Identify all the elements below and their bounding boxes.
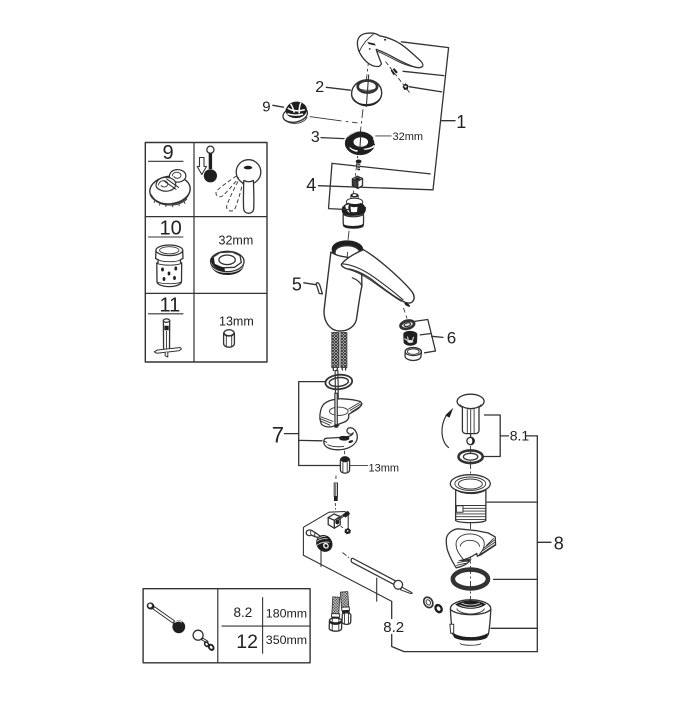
svg-text:9: 9 xyxy=(262,98,270,115)
svg-text:8: 8 xyxy=(554,533,564,553)
svg-text:13mm: 13mm xyxy=(369,463,400,475)
svg-text:8.2: 8.2 xyxy=(234,605,253,620)
svg-text:6: 6 xyxy=(447,329,456,348)
svg-text:5: 5 xyxy=(292,274,302,294)
svg-text:1: 1 xyxy=(456,112,466,132)
svg-text:10: 10 xyxy=(160,218,182,240)
svg-text:13mm: 13mm xyxy=(219,315,254,329)
svg-text:11: 11 xyxy=(160,295,181,317)
svg-text:350mm: 350mm xyxy=(266,633,307,647)
svg-text:3: 3 xyxy=(311,129,320,146)
svg-text:4: 4 xyxy=(306,175,316,195)
svg-text:7: 7 xyxy=(272,422,284,447)
svg-text:32mm: 32mm xyxy=(393,131,424,143)
svg-text:9: 9 xyxy=(163,142,174,164)
svg-text:32mm: 32mm xyxy=(219,234,254,248)
svg-text:2: 2 xyxy=(315,79,324,96)
svg-text:180mm: 180mm xyxy=(266,606,307,620)
svg-text:8.1: 8.1 xyxy=(510,428,530,444)
svg-text:12: 12 xyxy=(236,631,258,653)
svg-text:8.2: 8.2 xyxy=(383,619,404,636)
